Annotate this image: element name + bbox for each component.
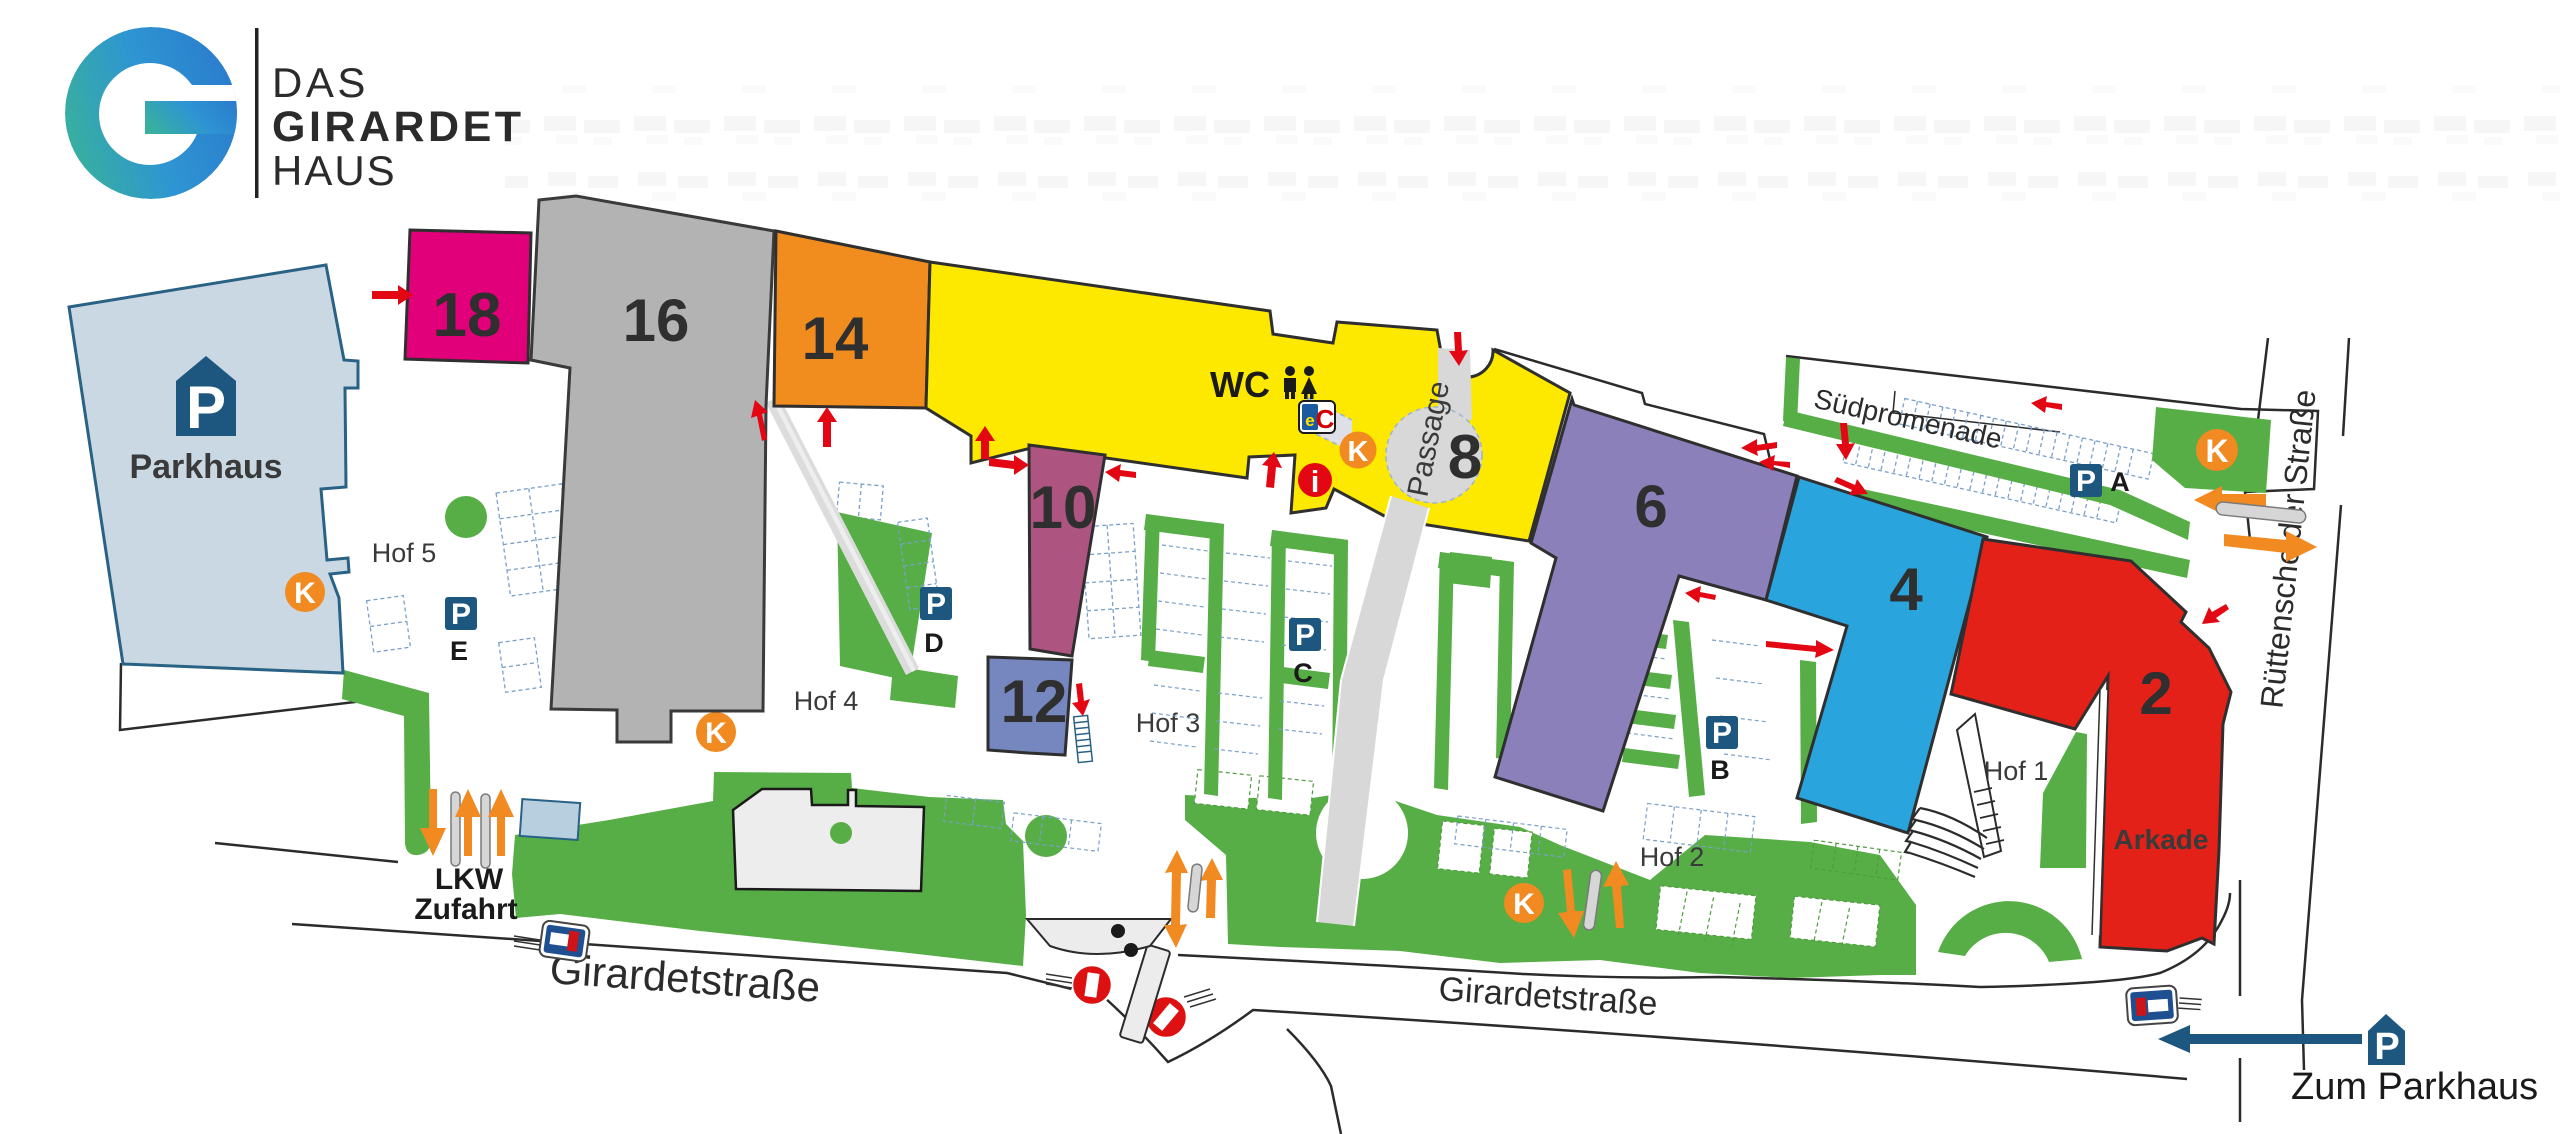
svg-text:A: A — [2110, 467, 2130, 497]
svg-text:C: C — [1293, 658, 1313, 688]
svg-text:HAUS: HAUS — [272, 147, 397, 194]
svg-text:K: K — [294, 577, 316, 610]
svg-text:LKW: LKW — [435, 863, 504, 896]
svg-text:4: 4 — [1889, 556, 1923, 623]
svg-text:B: B — [1710, 755, 1730, 785]
svg-text:K: K — [1348, 436, 1369, 468]
svg-text:18: 18 — [433, 281, 502, 350]
svg-text:P: P — [186, 374, 226, 441]
svg-text:Zum Parkhaus: Zum Parkhaus — [2291, 1066, 2538, 1108]
svg-text:P: P — [2374, 1026, 2399, 1068]
svg-text:K: K — [705, 717, 727, 750]
svg-text:E: E — [450, 636, 468, 666]
svg-text:P: P — [2076, 465, 2096, 498]
svg-text:e: e — [1305, 411, 1314, 430]
svg-text:Hof 2: Hof 2 — [1640, 842, 1705, 872]
svg-text:Hof 3: Hof 3 — [1136, 708, 1201, 738]
svg-text:14: 14 — [802, 305, 869, 372]
svg-text:Arkade: Arkade — [2114, 824, 2209, 855]
svg-text:K: K — [1513, 888, 1535, 921]
svg-text:Zufahrt: Zufahrt — [414, 893, 517, 926]
svg-text:D: D — [924, 628, 944, 658]
svg-text:P: P — [926, 588, 946, 621]
svg-text:C: C — [1316, 404, 1335, 434]
svg-text:DAS: DAS — [272, 59, 369, 106]
svg-text:Parkhaus: Parkhaus — [129, 448, 282, 486]
svg-text:Hof 5: Hof 5 — [372, 538, 437, 568]
svg-text:8: 8 — [1448, 423, 1482, 492]
svg-text:WC: WC — [1210, 364, 1270, 405]
svg-text:6: 6 — [1634, 473, 1667, 540]
svg-text:Hof 4: Hof 4 — [794, 686, 859, 716]
svg-text:K: K — [2205, 433, 2228, 469]
svg-text:16: 16 — [623, 287, 690, 354]
svg-text:P: P — [451, 598, 471, 631]
svg-text:P: P — [1712, 717, 1732, 750]
svg-text:2: 2 — [2139, 660, 2172, 727]
svg-text:P: P — [1295, 619, 1315, 652]
svg-text:10: 10 — [1030, 474, 1097, 541]
svg-text:GIRARDET: GIRARDET — [272, 103, 525, 151]
svg-text:Hof 1: Hof 1 — [1984, 756, 2049, 786]
svg-text:i: i — [1311, 464, 1320, 499]
svg-text:12: 12 — [1001, 668, 1068, 735]
